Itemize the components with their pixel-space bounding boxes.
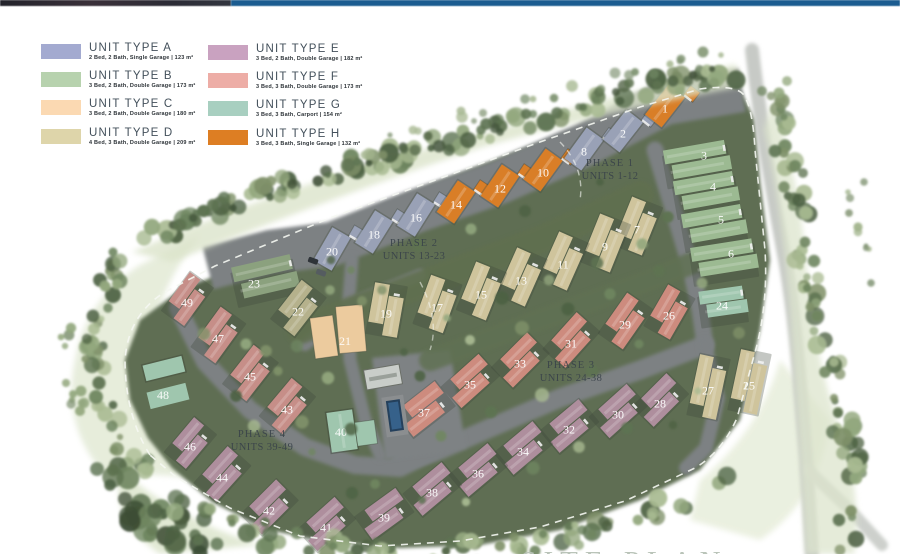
svg-text:PHASE 3: PHASE 3 (547, 360, 595, 371)
svg-text:21: 21 (339, 334, 351, 348)
svg-text:42: 42 (263, 504, 275, 518)
svg-text:28: 28 (654, 397, 666, 411)
svg-text:PHASE 4: PHASE 4 (238, 429, 286, 440)
svg-text:46: 46 (184, 440, 196, 454)
svg-text:8: 8 (581, 145, 587, 159)
svg-text:UNITS 39-49: UNITS 39-49 (231, 442, 293, 453)
svg-text:18: 18 (368, 228, 380, 242)
svg-text:47: 47 (212, 332, 224, 346)
svg-text:26: 26 (663, 309, 675, 323)
svg-text:SITE PLAN: SITE PLAN (520, 546, 727, 554)
svg-text:2: 2 (620, 127, 626, 141)
svg-text:17: 17 (431, 301, 443, 315)
svg-text:15: 15 (475, 288, 487, 302)
svg-text:49: 49 (181, 296, 193, 310)
svg-text:PHASE 1: PHASE 1 (586, 158, 634, 169)
svg-text:48: 48 (157, 388, 169, 402)
svg-text:23: 23 (248, 277, 260, 291)
svg-text:UNITS 24-38: UNITS 24-38 (540, 373, 602, 384)
svg-text:22: 22 (292, 305, 304, 319)
svg-text:12: 12 (494, 182, 506, 196)
svg-text:11: 11 (557, 258, 569, 272)
svg-text:16: 16 (410, 211, 422, 225)
svg-text:1: 1 (662, 102, 668, 116)
svg-text:4: 4 (710, 180, 716, 194)
svg-text:35: 35 (464, 378, 476, 392)
svg-text:9: 9 (602, 240, 608, 254)
svg-text:UNITS 1-12: UNITS 1-12 (582, 171, 639, 182)
svg-text:37: 37 (418, 406, 430, 420)
svg-text:PHASE 2: PHASE 2 (390, 238, 438, 249)
svg-text:27: 27 (702, 384, 714, 398)
svg-text:36: 36 (472, 467, 484, 481)
svg-text:24: 24 (716, 299, 728, 313)
svg-text:13: 13 (515, 274, 527, 288)
svg-text:14: 14 (450, 198, 462, 212)
svg-text:10: 10 (537, 166, 549, 180)
svg-text:38: 38 (426, 486, 438, 500)
svg-text:3: 3 (701, 149, 707, 163)
svg-text:5: 5 (718, 213, 724, 227)
svg-text:7: 7 (634, 223, 640, 237)
svg-text:34: 34 (517, 445, 529, 459)
svg-text:6: 6 (728, 247, 734, 261)
svg-text:UNITS 13-23: UNITS 13-23 (383, 251, 445, 262)
svg-text:43: 43 (281, 403, 293, 417)
svg-text:39: 39 (378, 511, 390, 525)
svg-text:29: 29 (619, 318, 631, 332)
svg-text:45: 45 (244, 370, 256, 384)
svg-text:33: 33 (514, 357, 526, 371)
svg-text:44: 44 (216, 471, 228, 485)
svg-text:31: 31 (565, 337, 577, 351)
svg-text:25: 25 (743, 379, 755, 393)
svg-text:30: 30 (612, 408, 624, 422)
svg-text:32: 32 (563, 423, 575, 437)
svg-text:19: 19 (380, 307, 392, 321)
